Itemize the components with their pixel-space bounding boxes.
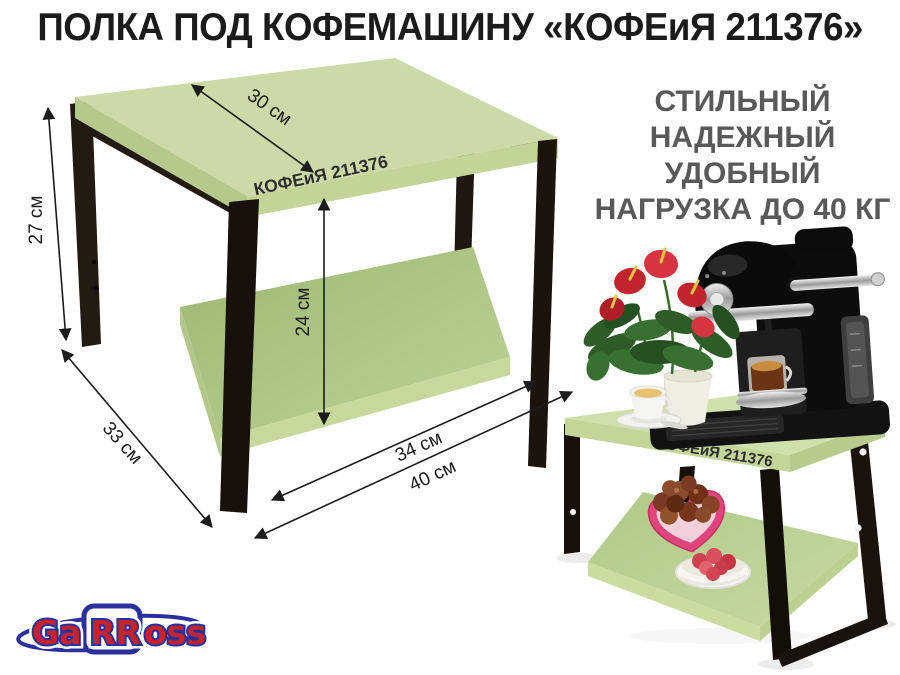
dimension-diagram: КОФЕиЯ 211376 27 см 30 см 24 см 33 см 34… bbox=[18, 50, 595, 560]
dim-height: 27 см bbox=[26, 108, 66, 340]
brand-logo: Ga Ga Ga RR RR RR oss oss oss bbox=[10, 598, 215, 664]
diagram-bolt-hole bbox=[94, 286, 99, 291]
dim-base-depth-label: 33 см bbox=[98, 418, 146, 468]
feature-line: СТИЛЬНЫЙ bbox=[570, 84, 900, 120]
logo-part-ga: Ga bbox=[32, 613, 81, 652]
dim-shelf-width-label: 34 см bbox=[392, 427, 445, 466]
espresso-glass bbox=[747, 355, 792, 394]
logo-wordmark: Ga Ga Ga RR RR RR oss oss oss bbox=[32, 613, 206, 652]
product-photo: КОФЕиЯ 211376 bbox=[538, 208, 900, 675]
product-banner: ПОЛКА ПОД КОФЕМАШИНУ «КОФЕиЯ 211376» bbox=[0, 0, 900, 675]
feature-list: СТИЛЬНЫЙ НАДЕЖНЫЙ УДОБНЫЙ НАГРУЗКА ДО 40… bbox=[570, 84, 900, 228]
photo-leg-right-bracket bbox=[849, 432, 886, 620]
diagram-top-board bbox=[75, 58, 558, 217]
dim-arrow bbox=[62, 350, 212, 527]
feature-line: УДОБНЫЙ bbox=[570, 156, 900, 192]
dim-arrow bbox=[48, 108, 66, 340]
dim-total-width-label: 40 см bbox=[406, 456, 459, 496]
diagram-bolt-hole bbox=[92, 260, 97, 265]
banner-title: ПОЛКА ПОД КОФЕМАШИНУ «КОФЕиЯ 211376» bbox=[0, 6, 900, 50]
dim-base-depth: 33 см bbox=[62, 350, 212, 527]
dim-clearance-label: 24 см bbox=[293, 288, 314, 337]
logo-part-rr: RR bbox=[90, 613, 141, 652]
feature-line: НАДЕЖНЫЙ bbox=[570, 120, 900, 156]
dim-height-label: 27 см bbox=[26, 196, 47, 245]
banner-title-text: ПОЛКА ПОД КОФЕМАШИНУ «КОФЕиЯ 211376» bbox=[37, 6, 863, 50]
photo-leg-front-left bbox=[564, 421, 580, 554]
logo-part-oss: oss bbox=[144, 613, 206, 652]
